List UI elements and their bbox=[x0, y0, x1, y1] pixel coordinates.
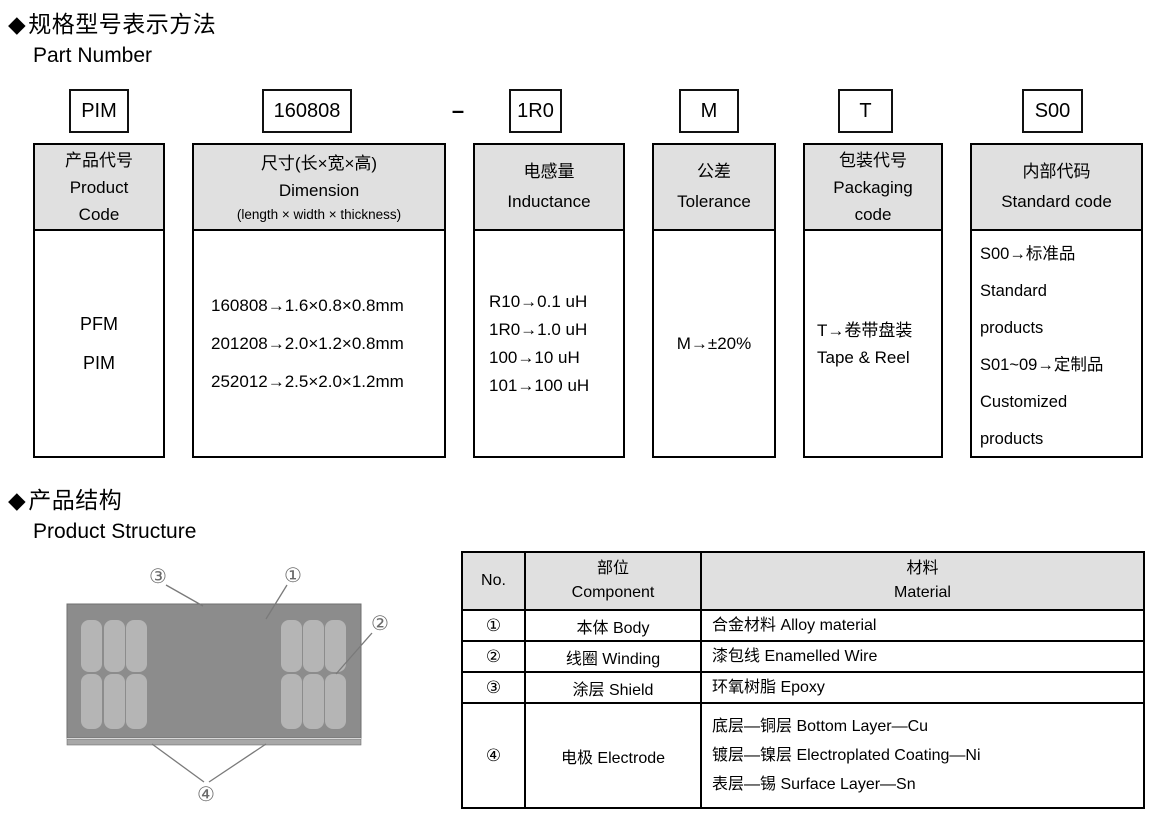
electrode-strip-shape bbox=[67, 739, 361, 745]
header-en: Dimension bbox=[279, 177, 359, 204]
column-inductance: 电感量 Inductance R10→0.1 uH 1R0→1.0 uH 100… bbox=[473, 143, 625, 458]
part-number-box-packaging: T bbox=[838, 89, 893, 133]
row-component: 涂层 Shield bbox=[525, 672, 701, 703]
body-line: Tape & Reel bbox=[817, 344, 941, 371]
label-3-icon: ③ bbox=[149, 564, 167, 588]
column-standard-code: 内部代码 Standard code S00→标准品 Standard prod… bbox=[970, 143, 1143, 458]
part-number-box-product-code: PIM bbox=[69, 89, 129, 133]
row-component: 线圈 Winding bbox=[525, 641, 701, 672]
column-standard-code-body: S00→标准品 Standard products S01~09→定制品 Cus… bbox=[972, 231, 1141, 458]
row-no: ④ bbox=[462, 703, 525, 808]
column-inductance-header: 电感量 Inductance bbox=[475, 145, 623, 231]
row-no: ① bbox=[462, 610, 525, 641]
row-material: 底层—铜层 Bottom Layer—Cu 镀层—镍层 Electroplate… bbox=[701, 703, 1144, 808]
column-packaging-body: T→卷带盘装 Tape & Reel bbox=[805, 231, 941, 456]
header-small: (length × width × thickness) bbox=[237, 204, 401, 225]
table-row-winding: ② 线圈 Winding 漆包线 Enamelled Wire bbox=[462, 641, 1144, 672]
part-number-box-inductance: 1R0 bbox=[509, 89, 562, 133]
section1-title: ◆规格型号表示方法 bbox=[8, 5, 216, 39]
table-row-shield: ③ 涂层 Shield 环氧树脂 Epoxy bbox=[462, 672, 1144, 703]
label-2-icon: ② bbox=[371, 611, 389, 635]
body-line: Customized bbox=[980, 384, 1141, 421]
header-zh: 产品代号 bbox=[65, 147, 133, 174]
column-tolerance-header: 公差 Tolerance bbox=[654, 145, 774, 231]
table-row-electrode: ④ 电极 Electrode 底层—铜层 Bottom Layer—Cu 镀层—… bbox=[462, 703, 1144, 808]
header-en: Packaging bbox=[833, 174, 912, 201]
section1-title-en: Part Number bbox=[33, 44, 152, 68]
row-no: ② bbox=[462, 641, 525, 672]
column-packaging-header: 包装代号 Packaging code bbox=[805, 145, 941, 231]
body-line: PFM bbox=[80, 305, 118, 344]
column-tolerance: 公差 Tolerance M→±20% bbox=[652, 143, 776, 458]
section2-title-en: Product Structure bbox=[33, 520, 196, 544]
material-line: 镀层—镍层 Electroplated Coating—Ni bbox=[712, 741, 1143, 770]
column-packaging: 包装代号 Packaging code T→卷带盘装 Tape & Reel bbox=[803, 143, 943, 458]
header-material: 材料 Material bbox=[701, 552, 1144, 610]
header-material-zh: 材料 bbox=[702, 557, 1143, 581]
body-line: 101→100 uH bbox=[489, 372, 623, 400]
right-winding-pads bbox=[281, 620, 346, 729]
header-zh: 公差 bbox=[697, 157, 731, 187]
column-inductance-body: R10→0.1 uH 1R0→1.0 uH 100→10 uH 101→100 … bbox=[475, 231, 623, 456]
material-line: 表层—锡 Surface Layer—Sn bbox=[712, 770, 1143, 799]
column-product-code: 产品代号 Product Code PFM PIM bbox=[33, 143, 165, 458]
structure-table-header-row: No. 部位 Component 材料 Material bbox=[462, 552, 1144, 610]
part-number-box-tolerance: M bbox=[679, 89, 739, 133]
part-number-separator: – bbox=[445, 89, 471, 133]
row-component: 电极 Electrode bbox=[525, 703, 701, 808]
header-component: 部位 Component bbox=[525, 552, 701, 610]
diamond-bullet-icon: ◆ bbox=[8, 487, 26, 513]
body-line: R10→0.1 uH bbox=[489, 288, 623, 316]
body-line: 252012→2.5×2.0×1.2mm bbox=[211, 363, 444, 401]
column-dimension-header: 尺寸(长×宽×高) Dimension (length × width × th… bbox=[194, 145, 444, 231]
section2-title: ◆产品结构 bbox=[8, 481, 122, 515]
header-component-zh: 部位 bbox=[526, 557, 700, 581]
row-material: 漆包线 Enamelled Wire bbox=[701, 641, 1144, 672]
structure-table: No. 部位 Component 材料 Material ① 本体 Body 合… bbox=[461, 551, 1145, 809]
header-en: Standard code bbox=[1001, 187, 1112, 217]
body-line: S01~09→定制品 bbox=[980, 347, 1141, 384]
section2-title-zh: 产品结构 bbox=[28, 487, 122, 513]
header-zh: 尺寸(长×宽×高) bbox=[261, 150, 377, 177]
header-zh: 电感量 bbox=[524, 157, 575, 187]
datasheet-page: ◆规格型号表示方法 Part Number PIM 160808 – 1R0 M… bbox=[0, 0, 1149, 813]
label-1-icon: ① bbox=[284, 563, 302, 587]
header-zh: 内部代码 bbox=[1023, 157, 1091, 187]
body-line: 201208→2.0×1.2×0.8mm bbox=[211, 325, 444, 363]
row-material: 环氧树脂 Epoxy bbox=[701, 672, 1144, 703]
header-component-en: Component bbox=[526, 581, 700, 605]
row-component: 本体 Body bbox=[525, 610, 701, 641]
part-number-box-dimension: 160808 bbox=[262, 89, 352, 133]
column-tolerance-body: M→±20% bbox=[654, 231, 774, 456]
section1-title-zh: 规格型号表示方法 bbox=[28, 11, 216, 37]
column-standard-code-header: 内部代码 Standard code bbox=[972, 145, 1141, 231]
header-en2: code bbox=[855, 201, 892, 228]
left-winding-pads bbox=[81, 620, 147, 729]
column-dimension-body: 160808→1.6×0.8×0.8mm 201208→2.0×1.2×0.8m… bbox=[194, 231, 444, 456]
header-en2: Code bbox=[79, 201, 120, 228]
header-material-en: Material bbox=[702, 581, 1143, 605]
product-structure-diagram: ③ ① ② ④ bbox=[30, 555, 450, 810]
body-line: 100→10 uH bbox=[489, 344, 623, 372]
row-material: 合金材料 Alloy material bbox=[701, 610, 1144, 641]
row-no: ③ bbox=[462, 672, 525, 703]
diamond-bullet-icon: ◆ bbox=[8, 11, 26, 37]
header-en: Tolerance bbox=[677, 187, 751, 217]
body-line: products bbox=[980, 421, 1141, 458]
header-en: Product bbox=[70, 174, 129, 201]
header-no: No. bbox=[462, 552, 525, 610]
body-line: M→±20% bbox=[677, 334, 752, 354]
label-4-icon: ④ bbox=[197, 782, 215, 806]
header-en: Inductance bbox=[507, 187, 590, 217]
body-line: products bbox=[980, 310, 1141, 347]
body-line: T→卷带盘装 bbox=[817, 317, 941, 344]
header-zh: 包装代号 bbox=[839, 147, 907, 174]
body-line: 160808→1.6×0.8×0.8mm bbox=[211, 287, 444, 325]
body-line: Standard bbox=[980, 273, 1141, 310]
table-row-body: ① 本体 Body 合金材料 Alloy material bbox=[462, 610, 1144, 641]
material-line: 底层—铜层 Bottom Layer—Cu bbox=[712, 712, 1143, 741]
body-line: PIM bbox=[83, 344, 115, 383]
body-line: 1R0→1.0 uH bbox=[489, 316, 623, 344]
body-line: S00→标准品 bbox=[980, 236, 1141, 273]
column-product-code-header: 产品代号 Product Code bbox=[35, 145, 163, 231]
column-dimension: 尺寸(长×宽×高) Dimension (length × width × th… bbox=[192, 143, 446, 458]
column-product-code-body: PFM PIM bbox=[35, 231, 163, 456]
part-number-box-standard: S00 bbox=[1022, 89, 1083, 133]
